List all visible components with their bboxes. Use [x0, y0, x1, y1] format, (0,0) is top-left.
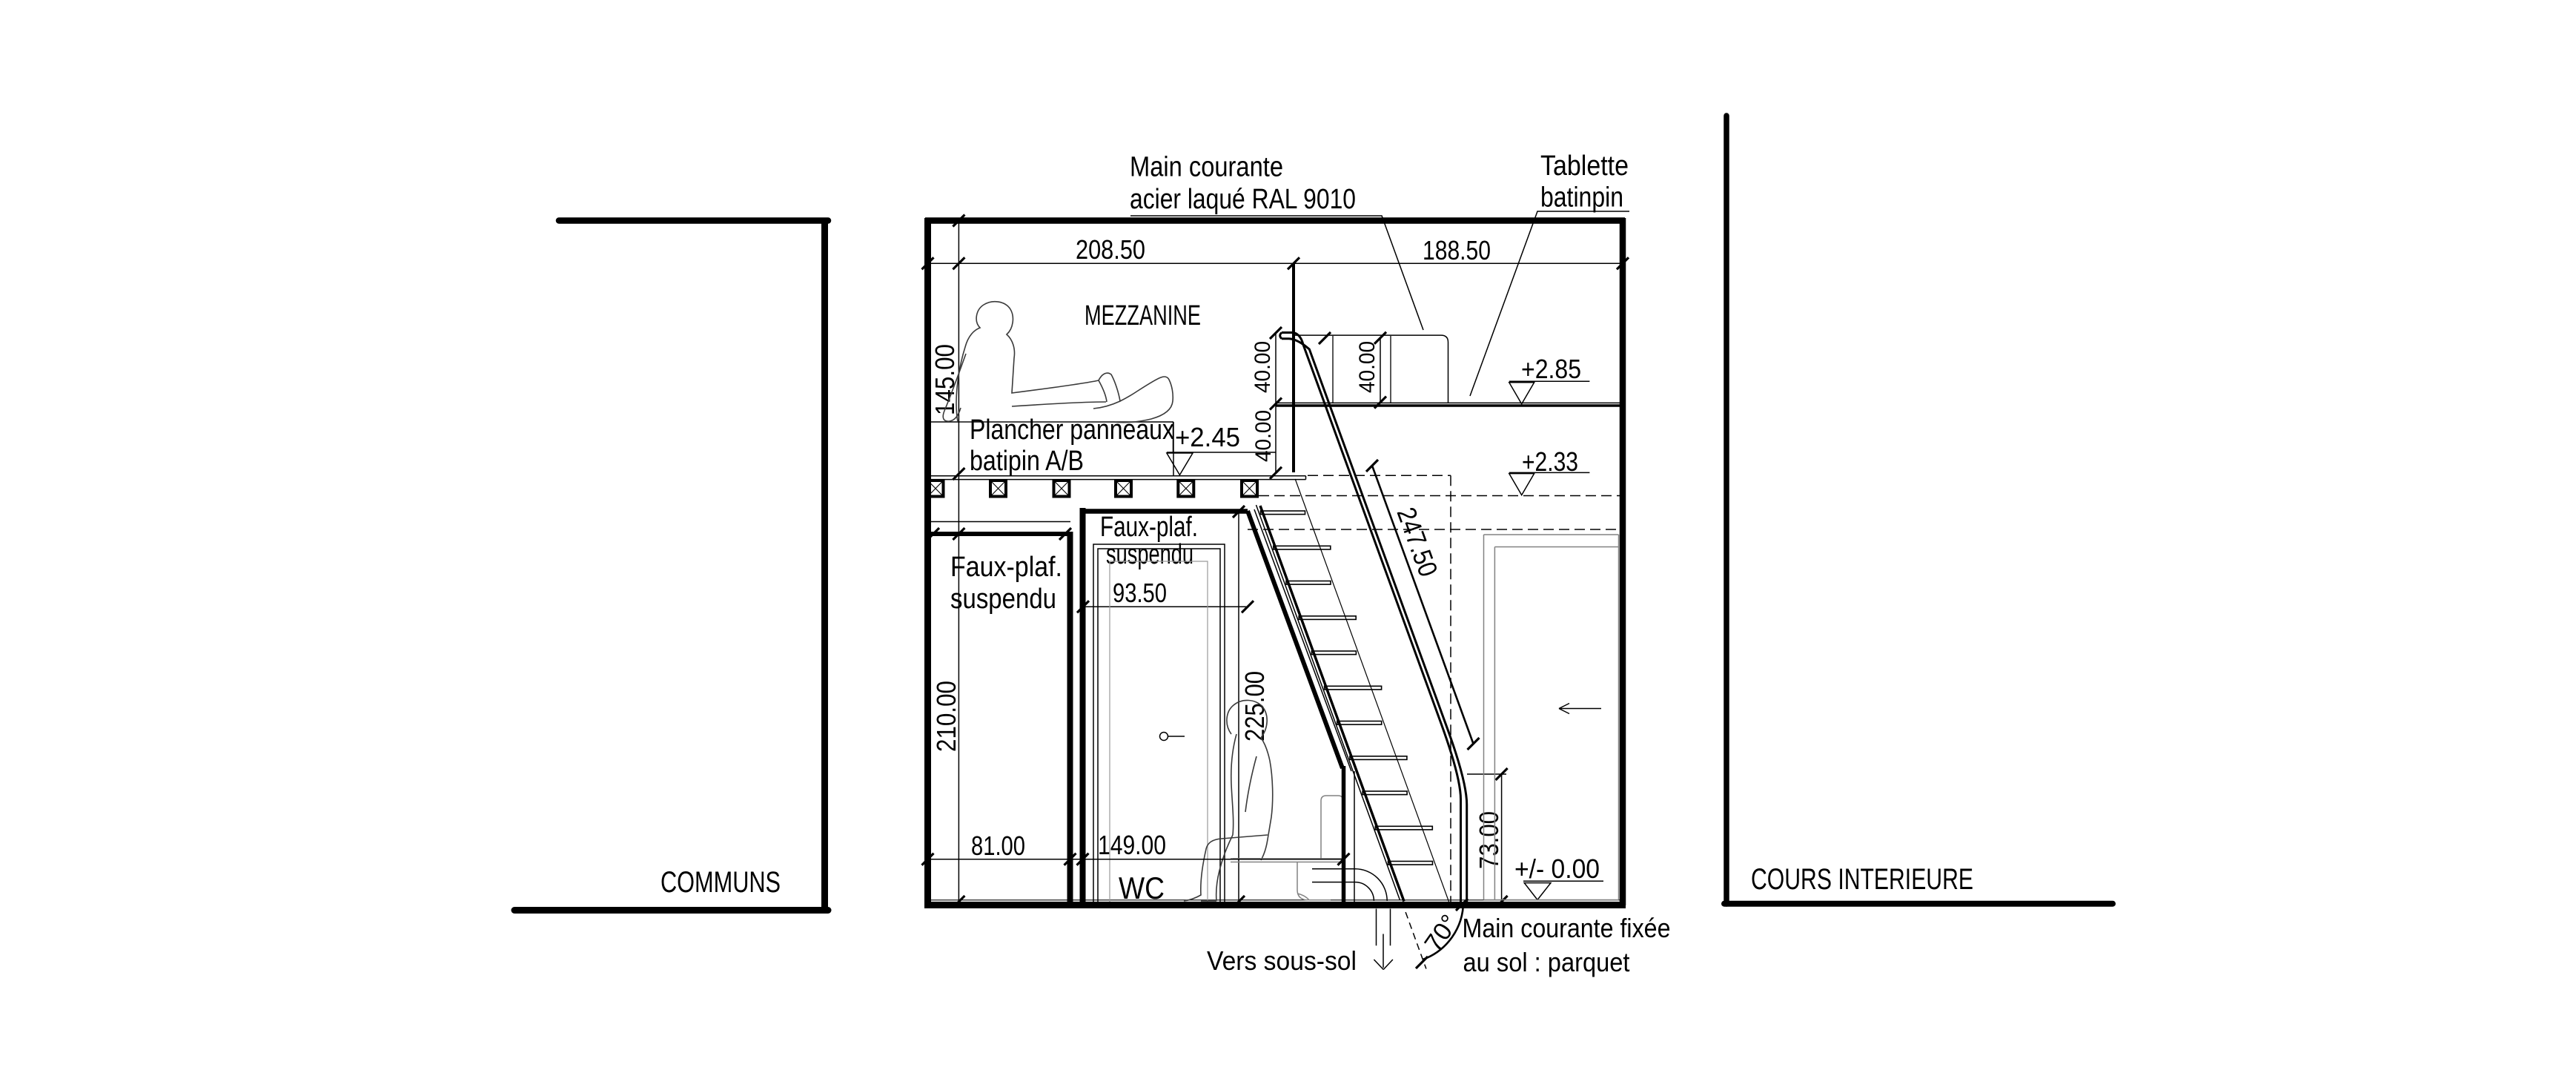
svg-text:208.50: 208.50 — [1076, 234, 1145, 265]
svg-text:145.00: 145.00 — [930, 344, 960, 415]
svg-text:Main courante fixée: Main courante fixée — [1463, 913, 1671, 943]
svg-text:MEZZANINE: MEZZANINE — [1085, 300, 1201, 331]
svg-text:149.00: 149.00 — [1098, 830, 1166, 860]
svg-text:40.00: 40.00 — [1251, 410, 1276, 462]
svg-text:suspendu: suspendu — [950, 584, 1056, 615]
svg-text:au sol : parquet: au sol : parquet — [1463, 947, 1630, 977]
svg-text:COMMUNS: COMMUNS — [660, 866, 781, 899]
svg-text:188.50: 188.50 — [1423, 235, 1491, 265]
svg-text:73.00: 73.00 — [1474, 811, 1504, 869]
svg-text:Vers sous-sol: Vers sous-sol — [1207, 945, 1357, 976]
svg-text:COURS INTERIEURE: COURS INTERIEURE — [1751, 863, 1973, 896]
svg-text:batinpin: batinpin — [1540, 182, 1623, 214]
svg-text:40.00: 40.00 — [1251, 341, 1275, 393]
svg-text:batipin A/B: batipin A/B — [970, 446, 1084, 477]
svg-text:210.00: 210.00 — [931, 681, 961, 752]
svg-text:Tablette: Tablette — [1540, 151, 1629, 182]
svg-text:Faux-plaf.: Faux-plaf. — [1100, 512, 1198, 543]
svg-text:40.00: 40.00 — [1355, 341, 1380, 393]
svg-text:+2.45: +2.45 — [1175, 422, 1240, 452]
svg-text:+2.85: +2.85 — [1521, 354, 1581, 384]
svg-text:Main courante: Main courante — [1130, 152, 1283, 183]
svg-text:acier laqué RAL 9010: acier laqué RAL 9010 — [1130, 184, 1356, 215]
svg-text:+/- 0.00: +/- 0.00 — [1514, 853, 1600, 884]
svg-text:93.50: 93.50 — [1113, 578, 1167, 608]
svg-text:Faux-plaf.: Faux-plaf. — [950, 552, 1062, 583]
svg-text:Plancher panneaux: Plancher panneaux — [970, 415, 1174, 446]
svg-text:81.00: 81.00 — [971, 830, 1025, 861]
svg-text:WC: WC — [1119, 871, 1165, 905]
